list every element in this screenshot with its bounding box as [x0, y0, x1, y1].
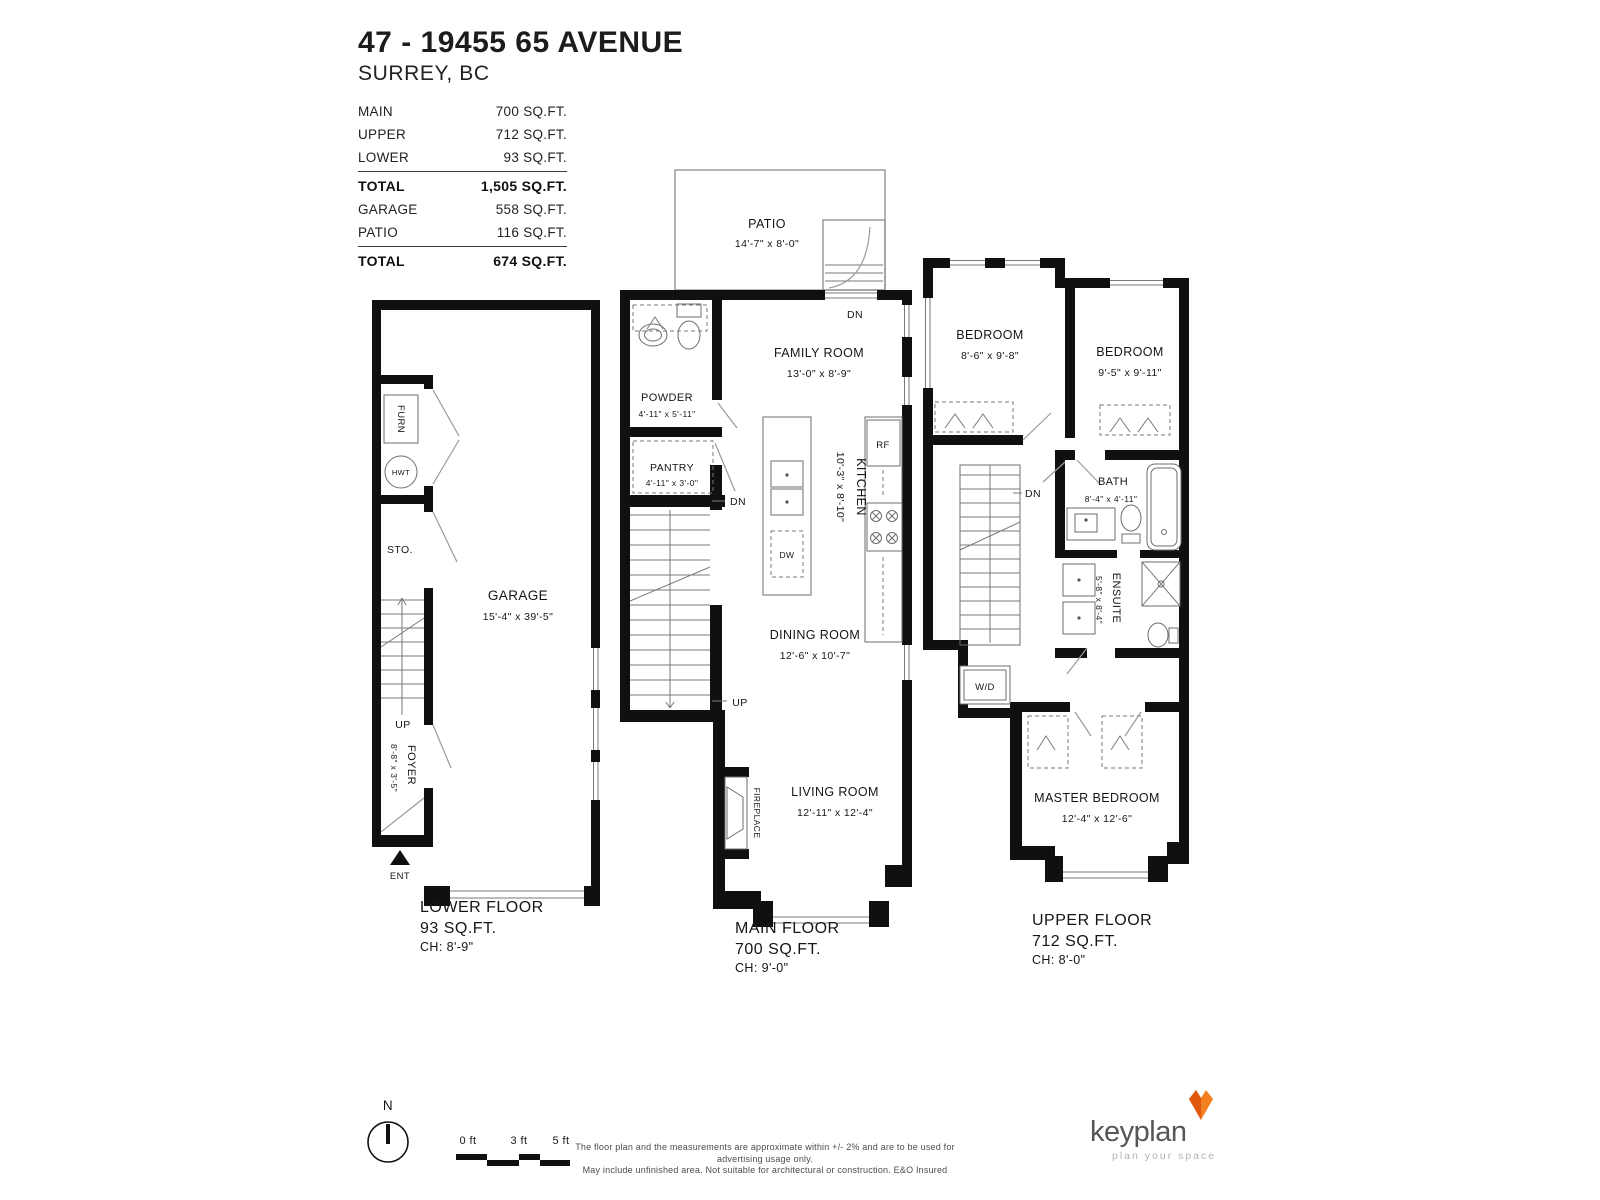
entry-arrow-icon — [390, 850, 410, 865]
main-floor-caption: MAIN FLOOR 700 SQ.FT. CH: 9'-0" — [735, 918, 840, 977]
foyer-dims: 8'-8" x 3'-5" — [389, 744, 399, 792]
master-bedroom-label: MASTER BEDROOM — [1034, 791, 1160, 805]
patio-dims: 14'-7" x 8'-0" — [735, 238, 799, 250]
master-bedroom-dims: 12'-4" x 12'-6" — [1062, 813, 1133, 825]
table-row: GARAGE558 SQ.FT. — [358, 198, 567, 221]
stairs-upper — [960, 465, 1022, 645]
kitchen-dims: 10'-3" x 8'-10" — [834, 452, 846, 523]
garage-label: GARAGE — [488, 588, 548, 603]
dishwasher-label: DW — [780, 550, 795, 560]
table-row: UPPER712 SQ.FT. — [358, 123, 567, 146]
bath-label: BATH — [1098, 476, 1128, 488]
ensuite-label: ENSUITE — [1110, 573, 1122, 623]
upper-floor-plan: BEDROOM 8'-6" x 9'-8" BEDROOM 9'-5" x 9'… — [915, 250, 1197, 915]
wd-label: W/D — [975, 682, 995, 693]
up-marker: UP — [395, 719, 410, 731]
up-marker: UP — [732, 697, 747, 709]
table-row: LOWER93 SQ.FT. — [358, 146, 567, 169]
bedroom2-dims: 9'-5" x 9'-11" — [1098, 367, 1162, 379]
table-divider — [358, 246, 567, 247]
fridge-label: RF — [876, 440, 889, 451]
lower-floor-plan: FURN HWT STO. UP FOYER 8'-8" x 3'-5" ENT… — [372, 300, 604, 908]
patio-stairs — [825, 227, 883, 288]
bedroom1-dims: 8'-6" x 9'-8" — [961, 350, 1019, 362]
compass-icon: N — [358, 1090, 422, 1170]
foyer-label: FOYER — [405, 745, 417, 785]
fox-icon — [1186, 1090, 1216, 1122]
family-room-label: FAMILY ROOM — [774, 346, 864, 360]
page-subtitle: SURREY, BC — [358, 62, 490, 86]
disclaimer: The floor plan and the measurements are … — [555, 1142, 975, 1177]
kitchen-fixtures: RF DW — [763, 417, 902, 642]
powder-dims: 4'-11" x 5'-11" — [638, 409, 695, 419]
dn-marker: DN — [730, 496, 746, 508]
dining-room-label: DINING ROOM — [770, 628, 861, 642]
living-room-dims: 12'-11" x 12'-4" — [797, 807, 873, 819]
main-floor-plan: PATIO 14'-7" x 8'-0" — [615, 165, 915, 940]
dn-patio-marker: DN — [847, 309, 863, 321]
area-table: MAIN700 SQ.FT. UPPER712 SQ.FT. LOWER93 S… — [358, 100, 567, 273]
bath-dims: 8'-4" x 4'-11" — [1085, 494, 1138, 504]
keyplan-logo: keyplan plan your space — [1090, 1088, 1220, 1162]
table-row: MAIN700 SQ.FT. — [358, 100, 567, 123]
furnace-label: FURN — [395, 405, 406, 433]
pantry-label: PANTRY — [650, 462, 694, 474]
brand-tagline: plan your space — [1112, 1150, 1220, 1162]
compass-n-label: N — [383, 1098, 393, 1113]
stairs-lower — [381, 598, 424, 715]
bedroom1-label: BEDROOM — [956, 328, 1023, 342]
kitchen-label: KITCHEN — [854, 458, 868, 516]
lower-floor-caption: LOWER FLOOR 93 SQ.FT. CH: 8'-9" — [420, 897, 544, 956]
table-total-row: TOTAL1,505 SQ.FT. — [358, 174, 567, 198]
table-total-row: TOTAL674 SQ.FT. — [358, 249, 567, 273]
table-divider — [358, 171, 567, 172]
fireplace-label: FIREPLACE — [752, 788, 762, 839]
upper-floor-caption: UPPER FLOOR 712 SQ.FT. CH: 8'-0" — [1032, 910, 1152, 969]
family-room-dims: 13'-0" x 8'-9" — [787, 368, 851, 380]
table-row: PATIO116 SQ.FT. — [358, 221, 567, 244]
scale-3ft: 3 ft — [511, 1135, 528, 1147]
dn-marker: DN — [1025, 488, 1041, 500]
living-room-label: LIVING ROOM — [791, 785, 879, 799]
fireplace — [725, 777, 747, 849]
patio-label: PATIO — [748, 217, 786, 231]
storage-label: STO. — [387, 544, 413, 556]
garage-dims: 15'-4" x 39'-5" — [483, 611, 554, 623]
scale-0ft: 0 ft — [460, 1135, 477, 1147]
dining-room-dims: 12'-6" x 10'-7" — [780, 650, 851, 662]
powder-label: POWDER — [641, 392, 693, 404]
hwt-label: HWT — [392, 468, 410, 477]
entry-label: ENT — [390, 871, 410, 882]
page-title: 47 - 19455 65 AVENUE — [358, 26, 683, 60]
pantry-dims: 4'-11" x 3'-0" — [646, 478, 699, 488]
floor-plan-page: 47 - 19455 65 AVENUE SURREY, BC MAIN700 … — [0, 0, 1600, 1200]
bedroom2-label: BEDROOM — [1096, 345, 1163, 359]
